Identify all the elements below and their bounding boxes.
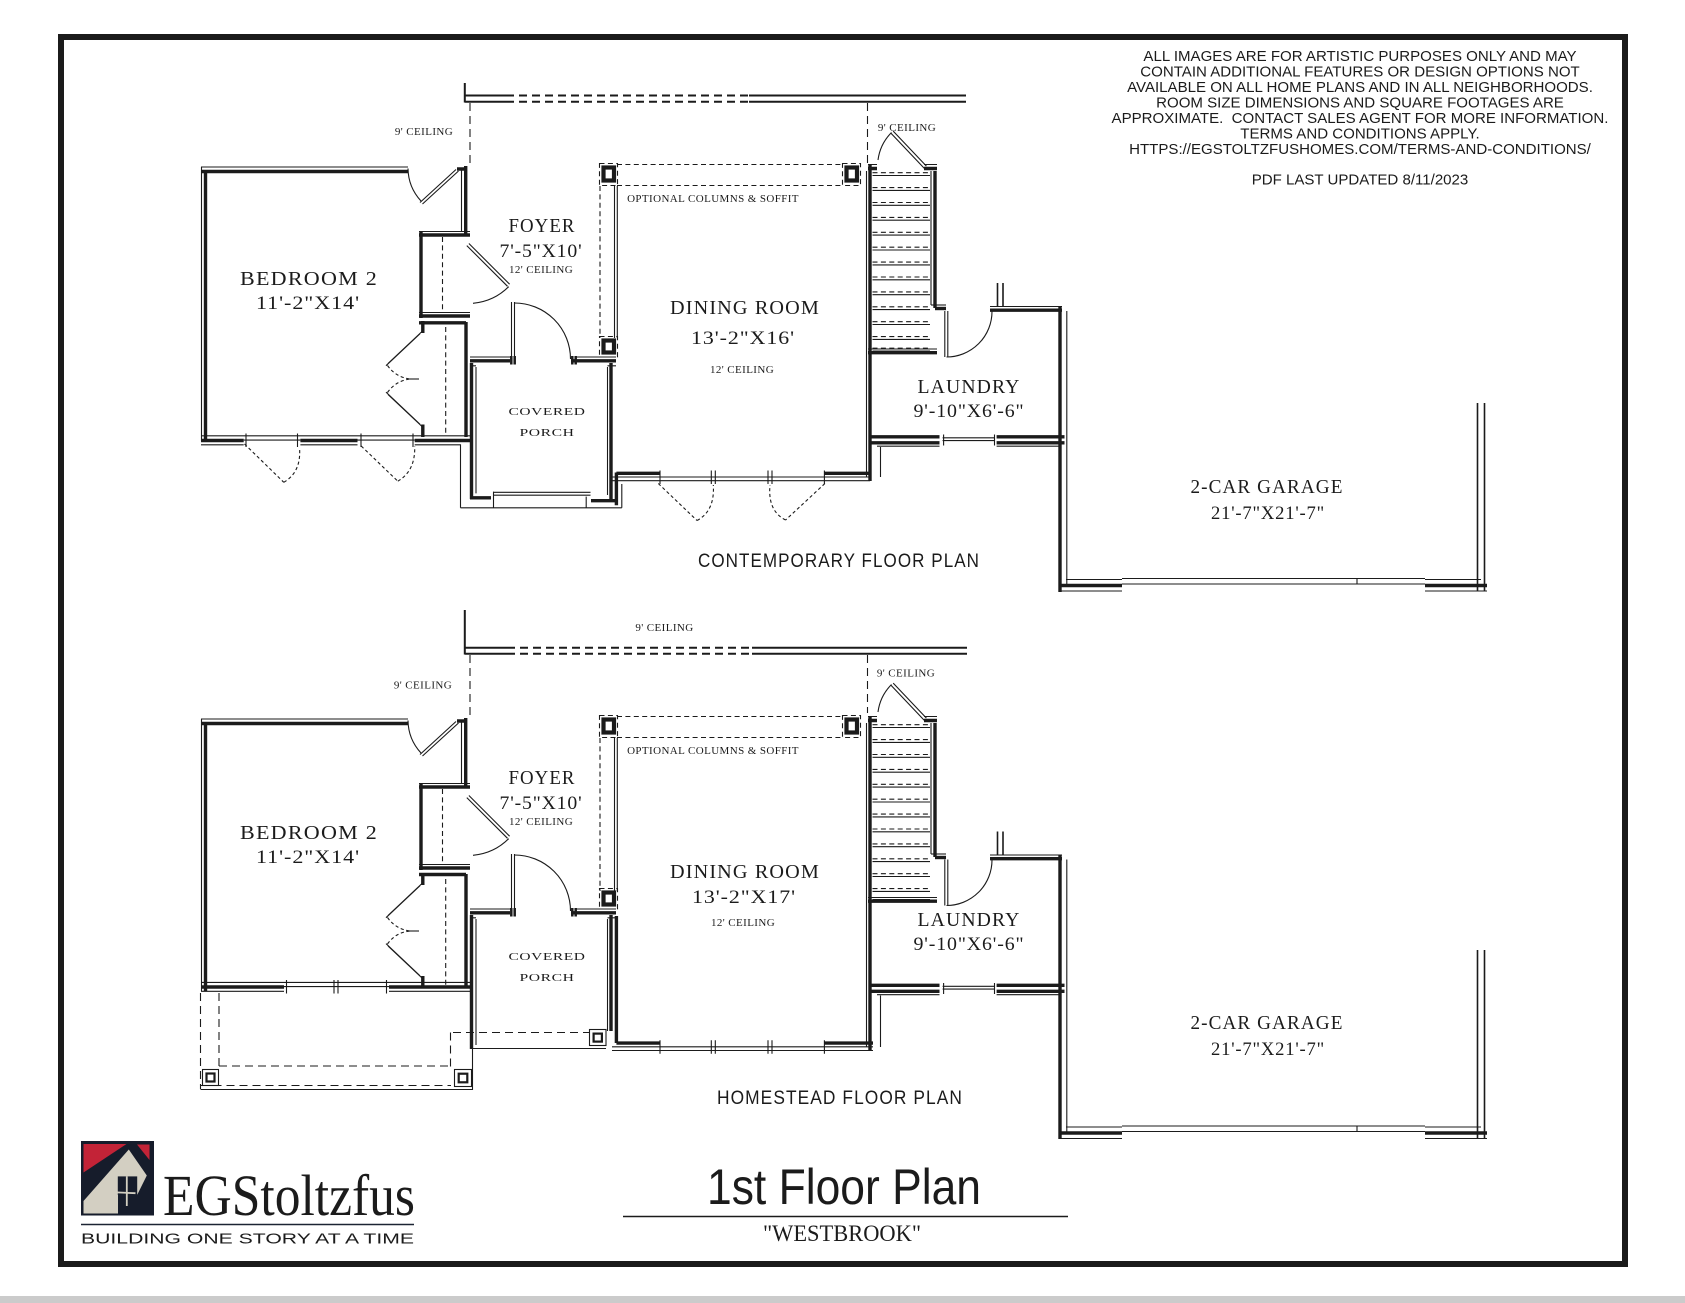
svg-text:ROOM SIZE DIMENSIONS AND SQUAR: ROOM SIZE DIMENSIONS AND SQUARE FOOTAGES… — [1156, 95, 1564, 112]
svg-text:CONTEMPORARY FLOOR PLAN: CONTEMPORARY FLOOR PLAN — [698, 550, 980, 572]
svg-text:LAUNDRY: LAUNDRY — [918, 910, 1021, 931]
svg-text:FOYER: FOYER — [509, 216, 576, 237]
svg-text:BUILDING ONE STORY AT A TIME: BUILDING ONE STORY AT A TIME — [81, 1232, 414, 1248]
svg-text:TERMS AND CONDITIONS APPLY.: TERMS AND CONDITIONS APPLY. — [1240, 126, 1479, 143]
svg-text:COVERED: COVERED — [509, 406, 586, 418]
svg-text:OPTIONAL COLUMNS & SOFFIT: OPTIONAL COLUMNS & SOFFIT — [627, 745, 799, 757]
svg-text:21'-7"X21'-7": 21'-7"X21'-7" — [1211, 504, 1325, 524]
svg-text:FOYER: FOYER — [509, 768, 576, 789]
svg-text:12' CEILING: 12' CEILING — [711, 917, 775, 929]
svg-text:COVERED: COVERED — [509, 951, 586, 963]
svg-text:PDF LAST UPDATED 8/11/2023: PDF LAST UPDATED 8/11/2023 — [1252, 172, 1469, 189]
svg-text:12' CEILING: 12' CEILING — [710, 364, 774, 376]
svg-text:CONTAIN ADDITIONAL FEATURES OR: CONTAIN ADDITIONAL FEATURES OR DESIGN OP… — [1140, 64, 1579, 81]
svg-text:12' CEILING: 12' CEILING — [509, 264, 573, 276]
svg-text:1st Floor Plan: 1st Floor Plan — [707, 1159, 981, 1215]
svg-text:LAUNDRY: LAUNDRY — [918, 377, 1021, 398]
svg-text:9'-10"X6'-6": 9'-10"X6'-6" — [914, 402, 1025, 422]
svg-text:ALL IMAGES ARE FOR ARTISTIC PU: ALL IMAGES ARE FOR ARTISTIC PURPOSES ONL… — [1143, 48, 1576, 65]
svg-text:9' CEILING: 9' CEILING — [394, 680, 452, 692]
svg-text:EGStoltzfus: EGStoltzfus — [163, 1163, 415, 1228]
svg-text:2-CAR GARAGE: 2-CAR GARAGE — [1191, 477, 1344, 498]
svg-text:OPTIONAL COLUMNS & SOFFIT: OPTIONAL COLUMNS & SOFFIT — [627, 193, 799, 205]
svg-text:21'-7"X21'-7": 21'-7"X21'-7" — [1211, 1040, 1325, 1060]
svg-text:HOMESTEAD FLOOR PLAN: HOMESTEAD FLOOR PLAN — [717, 1087, 963, 1109]
svg-text:BEDROOM 2: BEDROOM 2 — [240, 269, 378, 290]
svg-text:"WESTBROOK": "WESTBROOK" — [763, 1221, 921, 1246]
svg-text:AVAILABLE ON ALL HOME PLANS AN: AVAILABLE ON ALL HOME PLANS AND IN ALL N… — [1127, 79, 1593, 96]
svg-text:13'-2"X16': 13'-2"X16' — [691, 329, 795, 349]
svg-text:9' CEILING: 9' CEILING — [395, 126, 453, 138]
svg-text:9'-10"X6'-6": 9'-10"X6'-6" — [914, 935, 1025, 955]
svg-text:PORCH: PORCH — [520, 427, 575, 439]
svg-text:9' CEILING: 9' CEILING — [635, 622, 693, 634]
svg-text:2-CAR GARAGE: 2-CAR GARAGE — [1191, 1013, 1344, 1034]
svg-text:9' CEILING: 9' CEILING — [877, 668, 935, 680]
svg-text:7'-5"X10': 7'-5"X10' — [500, 242, 583, 262]
svg-text:PORCH: PORCH — [520, 972, 575, 984]
svg-text:11'-2"X14': 11'-2"X14' — [256, 848, 360, 868]
svg-text:APPROXIMATE. CONTACT SALES AG: APPROXIMATE. CONTACT SALES AGENT FOR MOR… — [1112, 110, 1609, 127]
svg-text:DINING ROOM: DINING ROOM — [670, 298, 820, 319]
svg-text:13'-2"X17': 13'-2"X17' — [692, 888, 796, 908]
svg-text:12' CEILING: 12' CEILING — [509, 816, 573, 828]
svg-text:7'-5"X10': 7'-5"X10' — [500, 794, 583, 814]
svg-text:11'-2"X14': 11'-2"X14' — [256, 294, 360, 314]
svg-text:DINING ROOM: DINING ROOM — [670, 862, 820, 883]
svg-text:BEDROOM 2: BEDROOM 2 — [240, 823, 378, 844]
svg-text:HTTPS://EGSTOLTZFUSHOMES.COM/T: HTTPS://EGSTOLTZFUSHOMES.COM/TERMS-AND-C… — [1129, 141, 1592, 158]
svg-text:9' CEILING: 9' CEILING — [878, 122, 936, 134]
